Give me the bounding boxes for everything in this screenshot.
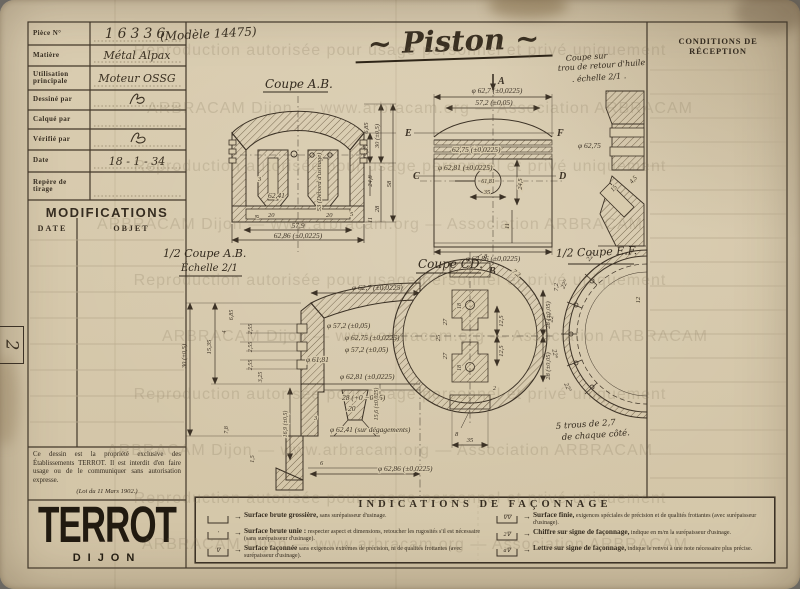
page-title: ~ Piston ~	[354, 21, 552, 64]
margin-mark: 2	[1, 340, 21, 351]
surface-desc: sans surépaisseur d'usinage.	[320, 513, 387, 519]
dim-label: 4,5	[628, 174, 639, 185]
logo-city: DIJON	[32, 552, 182, 564]
field-label: Calqué par	[28, 116, 88, 123]
dim-label: 12,5	[498, 315, 505, 327]
dim-label: 57,9	[291, 221, 304, 230]
column-header-objet: OBJET	[77, 224, 186, 233]
title-block-row: Calqué par	[28, 110, 186, 129]
dim-label: 1,5	[250, 455, 256, 463]
dim-label: 15,35	[206, 339, 213, 354]
title-block-row: Matière Métal Alpax	[28, 45, 186, 66]
view-elevation: φ 62,7 (±0,0225) 57,2 (±0,05) 62,75 (±0,…	[404, 74, 566, 277]
surface-name: Surface brute grossière,	[244, 510, 318, 519]
symbol-glyph: ∇	[216, 547, 222, 554]
dim-label: 62,86 (±0,0225)	[274, 231, 323, 240]
arrow-icon: →	[523, 511, 533, 521]
dim-label: 53 (Débord d'usinage)	[316, 153, 323, 212]
symbol-glyph: ∇∇	[503, 514, 513, 521]
section-letter: F	[556, 128, 564, 139]
legend-column-left: → Surface brute grossière, sans surépais…	[196, 511, 485, 561]
dim-label: 2,55	[248, 360, 254, 371]
title-block-row: Utilisation principale Moteur OSSG	[28, 66, 186, 90]
dim-label: 61,81	[481, 179, 495, 185]
dim-label: 12,5	[498, 345, 505, 357]
angle-label: 22°	[547, 312, 555, 322]
dim-label: 6	[320, 460, 324, 467]
dim-label: 28	[374, 205, 381, 212]
faconnage-symbol-icon: ∇∇	[493, 511, 523, 526]
legend-item: ∇∇ → Surface finie, exigences spéciales …	[493, 511, 770, 527]
faconnage-symbol-icon: a∇	[493, 544, 523, 559]
surface-name: Surface façonnée	[244, 543, 297, 552]
dim-label: 11	[504, 223, 511, 229]
dim-label: φ 62,81 (±0,0225)	[340, 372, 395, 381]
field-label: Dessiné par	[28, 96, 88, 103]
section-letter: A	[497, 76, 505, 87]
view-coupe-cd: Coupe CD. 8 7,2 7,2 12,5 12,5 27 25 27 1…	[386, 252, 560, 448]
dim-label: 18	[457, 303, 463, 309]
angle-label: 22°	[560, 278, 570, 290]
field-label: Matière	[28, 52, 88, 59]
matiere-value: Métal Alpax	[88, 49, 186, 62]
view-coupe-ab: Coupe A.B. 3 62,41 53 (Débord d'usinage)…	[229, 77, 396, 252]
section-title: 1/2 Coupe A.B.	[163, 247, 246, 260]
dim-label: 27	[442, 318, 449, 325]
ownership-text: Ce dessin est la propriété exclusive des…	[33, 451, 181, 486]
dim-label: 2	[493, 386, 496, 392]
dim-label: 20	[348, 404, 356, 413]
dim-label: φ 57,2 (±0,05)	[327, 321, 371, 330]
dim-label: 15,6 (±0,025)	[373, 388, 380, 421]
section-letter: C	[413, 171, 420, 182]
title-block: Pièce N° 16336 Matière Métal Alpax Utili…	[28, 22, 186, 200]
dim-label: φ 62,75 (±0,0225)	[345, 333, 400, 342]
surface-desc: indique en m/m la surépaisseur d'usinage…	[631, 530, 731, 536]
dim-label: 3,25	[258, 372, 264, 384]
symbol-glyph: ′	[217, 531, 219, 537]
ownership-note: Ce dessin est la propriété exclusive des…	[33, 451, 181, 495]
title-block-row: Repère de tirage	[28, 172, 186, 200]
dim-label: 6,85	[229, 310, 235, 321]
dim-label: 62,41	[268, 191, 285, 200]
field-label: Date	[28, 157, 88, 164]
symbol-glyph: 2∇	[503, 531, 512, 538]
dim-label: φ 62,81 (±0,0225)	[438, 163, 493, 172]
dim-label: 25	[435, 334, 442, 341]
legend-item: 2∇ → Chiffre sur signe de façonnage, ind…	[493, 528, 770, 543]
dim-label: 28 (±0,05)	[545, 352, 552, 379]
faconnage-symbol-icon: ∇	[204, 544, 234, 559]
dessine-signature-cell	[88, 90, 186, 111]
faconnage-symbol-icon: 2∇	[493, 528, 523, 543]
utilisation-value: Moteur OSSG	[88, 72, 186, 85]
legend-item: a∇ → Lettre sur signe de façonnage, indi…	[493, 544, 770, 559]
conditions-title: CONDITIONS DE RÉCEPTION	[652, 36, 784, 56]
surface-name: Surface brute unie :	[244, 526, 306, 535]
dim-label: 2,55	[248, 342, 254, 353]
dim-label: 15,35	[363, 144, 370, 159]
faconnage-symbol-icon	[204, 511, 234, 526]
legend-column-right: ∇∇ → Surface finie, exigences spéciales …	[485, 511, 774, 561]
angle-label: 22°	[562, 382, 572, 394]
dim-label: 11	[367, 217, 374, 223]
terrot-logo: TERROT	[32, 500, 182, 551]
dim-label: 27	[442, 352, 449, 359]
field-label: Vérifié par	[28, 136, 88, 143]
signature-mark	[124, 129, 150, 147]
title-block-row: Date 18 - 1 - 34	[28, 150, 186, 172]
legend-item: ′ → Surface brute unie : respecter aspec…	[204, 527, 481, 543]
arrow-icon: →	[523, 544, 533, 554]
symbol-glyph: a∇	[503, 547, 512, 554]
ownership-law: (Loi du 11 Mars 1902.)	[33, 488, 181, 495]
dim-label: 30 (±0,5)	[181, 344, 188, 369]
dim-label: φ 61,81	[306, 355, 329, 364]
dim-label: 30 (±0,5)	[374, 124, 381, 149]
dim-label: 12	[635, 296, 642, 303]
date-value: 18 - 1 - 34	[88, 155, 186, 168]
dim-label: 8	[255, 215, 261, 218]
dim-label: φ 62,7 (±0,0225)	[472, 86, 523, 95]
dim-label: φ 62,41 (sur dégagements)	[330, 425, 411, 434]
surface-desc: indique le renvoi à une note nécessaire …	[628, 546, 752, 552]
arrow-icon: →	[234, 527, 244, 537]
dim-label: 2,55	[248, 324, 254, 335]
angle-label: 22°	[550, 349, 558, 359]
dim-label: 35	[483, 189, 491, 196]
faconnage-symbol-icon: ′	[204, 527, 234, 542]
field-label: Utilisation principale	[28, 71, 88, 86]
dim-label: 24,5	[517, 178, 524, 190]
dim-label: 20	[326, 212, 333, 219]
field-label: Pièce N°	[28, 30, 88, 37]
section-title: Coupe A.B.	[265, 77, 333, 91]
dim-label: 8	[455, 431, 459, 438]
dim-label: 6,85	[363, 122, 370, 134]
arrow-icon: →	[523, 528, 533, 538]
title-block-row: Dessiné par	[28, 90, 186, 110]
section-letter: E	[404, 128, 412, 139]
field-label: Repère de tirage	[28, 179, 88, 194]
legend-item: ∇ → Surface façonnée sans exigences extr…	[204, 544, 481, 560]
dim-label: 4	[221, 331, 228, 334]
dim-label: φ 57,2 (±0,05)	[345, 345, 389, 354]
view-oil-hole-detail: φ 62,75 15 4,5 Coupe sur trou de retour …	[558, 51, 646, 246]
section-letter: D	[558, 171, 566, 182]
dim-label: 58	[386, 180, 393, 187]
modifications-title: MODIFICATIONS	[28, 205, 186, 220]
arrow-icon: →	[234, 544, 244, 554]
verifie-signature-cell	[88, 129, 186, 150]
section-scale: Échelle 2/1	[180, 262, 238, 274]
surface-name: Surface finie,	[533, 510, 574, 519]
legend-title: INDICATIONS DE FAÇONNAGE	[196, 499, 774, 510]
margin-mark-box: 2	[0, 326, 24, 364]
dim-label: φ 62,7 (±0,0225)	[352, 283, 403, 292]
surface-name: Lettre sur signe de façonnage,	[533, 543, 626, 552]
signature-mark	[124, 90, 150, 108]
logo-block: TERROT DIJON	[32, 508, 182, 564]
dim-label: 24,8	[367, 175, 374, 187]
arrow-icon: →	[234, 511, 244, 521]
column-header-date: DATE	[28, 224, 77, 233]
dim-label: 18	[457, 365, 463, 371]
surface-name: Chiffre sur signe de façonnage,	[533, 527, 629, 536]
dim-label: 35	[466, 437, 474, 444]
legend-item: → Surface brute grossière, sans surépais…	[204, 511, 481, 526]
dim-label: 7,8	[224, 426, 230, 434]
modifications-section: MODIFICATIONS DATE OBJET	[28, 205, 186, 233]
detail-note: . échelle 2/1 .	[572, 71, 627, 84]
view-half-coupe-ab: 1/2 Coupe A.B. Échelle 2/1 φ 62,7 (±0,02…	[163, 247, 433, 496]
scanned-technical-drawing: Coupe A.B. 3 62,41 53 (Débord d'usinage)…	[0, 0, 800, 589]
dim-label: φ 62,75	[578, 141, 601, 150]
dim-label: 57,2 (±0,05)	[475, 98, 513, 107]
dim-label: 16,9 (±0,5)	[282, 411, 289, 438]
faconnage-legend: INDICATIONS DE FAÇONNAGE → Surface brute…	[195, 497, 775, 563]
dim-label: 20	[268, 212, 275, 219]
title-block-row: Vérifié par	[28, 129, 186, 150]
section-title: Coupe CD.	[418, 257, 483, 271]
view-half-coupe-ef: 1/2 Coupe E.F. 22° 22° 22° 22° 22° 12 5 …	[547, 244, 647, 443]
dim-label: φ 62,86 (±0,0225)	[378, 464, 433, 473]
dim-label: 62,75 (±0,0225)	[452, 145, 501, 154]
